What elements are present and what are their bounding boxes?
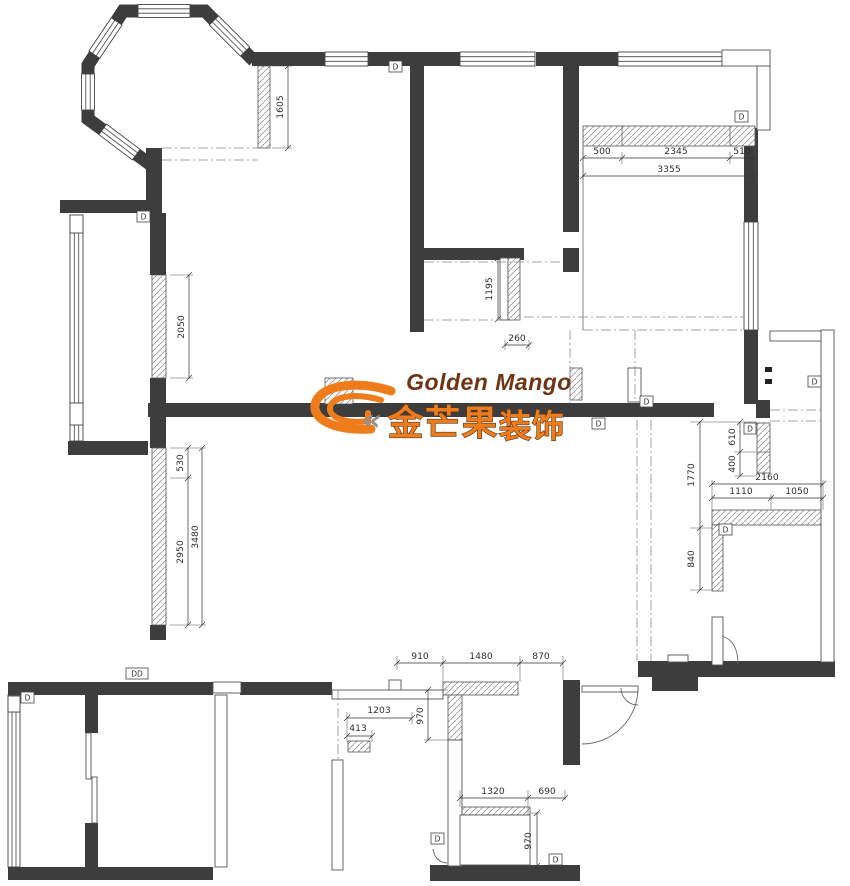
shower-box (460, 815, 530, 865)
door-label: D (137, 211, 150, 222)
sill (668, 655, 688, 662)
door-label: D (808, 376, 821, 387)
dim-1195: 1195 (484, 255, 501, 322)
dim-text: 2950 (175, 540, 186, 564)
floor-plan-svg: 1605 500 2345 510 3355 1195 260 2050 (0, 0, 850, 886)
hatched-wall (460, 807, 530, 815)
bottom-left-window (8, 695, 20, 867)
dim-910: 910 (394, 651, 446, 666)
wall-segment (536, 52, 618, 66)
svg-text:D: D (596, 420, 602, 429)
door-label: D (719, 524, 732, 535)
svg-text:D: D (644, 398, 650, 407)
hatched-wall (583, 126, 755, 146)
dim-text: 1195 (484, 277, 495, 301)
bay-window (82, 5, 255, 166)
door-label: D (640, 396, 653, 407)
hatched-wall (712, 510, 823, 525)
dim-text: 1770 (686, 463, 697, 487)
hatched-window (152, 275, 166, 378)
dim-text: 1203 (367, 705, 391, 716)
dim-text: 840 (686, 550, 697, 568)
top-window (325, 52, 368, 66)
svg-text:D: D (812, 378, 818, 387)
windows (8, 52, 758, 867)
wall-segment (410, 66, 424, 332)
sliding-door (86, 733, 91, 779)
dim-text: 690 (538, 786, 556, 797)
dim-text: 970 (415, 707, 426, 725)
dim-text: 910 (411, 651, 429, 662)
wall-segment (8, 682, 213, 695)
wall-segment (652, 677, 698, 691)
dim-610: 610 (727, 419, 743, 455)
bay-window-pane (209, 16, 249, 56)
dim-3480: 3480 (190, 445, 205, 628)
logo-type-zh: 装饰 (499, 407, 565, 445)
dim-840: 840 (686, 528, 703, 593)
right-window (744, 222, 758, 330)
dim-text: 610 (727, 428, 738, 446)
door-label: D (549, 854, 562, 865)
hatched-wall (348, 741, 370, 752)
sliding-door (92, 777, 97, 823)
wall-segment (563, 680, 580, 765)
dim-1605: 1605 (275, 63, 291, 151)
floor-plan-canvas: 1605 500 2345 510 3355 1195 260 2050 (0, 0, 850, 886)
dim-2160: 2160 (709, 472, 826, 487)
wall-segment (85, 692, 98, 733)
dim-text: 870 (532, 651, 550, 662)
lintel (213, 682, 241, 693)
bay-window-pane (82, 74, 95, 110)
svg-text:DD: DD (131, 670, 143, 679)
wall-segment (563, 66, 579, 232)
door-label-double: DD (126, 668, 148, 679)
logo-name-zh: 金芒果 (387, 403, 499, 444)
vent (765, 379, 772, 384)
wall-segment (85, 823, 98, 867)
thin-wall (332, 760, 343, 870)
vent (765, 367, 772, 372)
svg-text:D: D (435, 835, 441, 844)
dim-870: 870 (520, 651, 566, 666)
svg-text:D: D (393, 63, 399, 72)
dim-text: 1110 (729, 486, 753, 497)
wall-segment (8, 867, 213, 880)
wall-segment (240, 682, 332, 695)
door-label: D (21, 692, 34, 703)
svg-text:D: D (141, 213, 147, 222)
dimensions: 1605 500 2345 510 3355 1195 260 2050 (175, 63, 826, 869)
top-window (460, 52, 535, 66)
dim-2050: 2050 (176, 272, 192, 381)
dim-2345: 2345 (622, 146, 733, 161)
wall-segment (638, 661, 835, 677)
dim-text: 530 (175, 454, 186, 472)
door-label: D (389, 61, 402, 72)
wall-segment (368, 52, 460, 66)
entry-door-arc (582, 688, 638, 744)
hatched-wall (508, 258, 520, 320)
bay-window-pane (99, 124, 140, 160)
wall-segment (150, 213, 166, 275)
wall-segment (430, 865, 580, 881)
partition (628, 368, 641, 402)
door-label: D (592, 418, 605, 429)
dim-530: 530 (175, 445, 191, 481)
door-label: D (431, 833, 444, 844)
dim-500: 500 (580, 146, 625, 161)
balcony-door-arc (722, 636, 738, 664)
door-label: D (735, 111, 748, 122)
dim-400: 400 (727, 452, 743, 479)
left-balcony-window (70, 215, 83, 441)
hatched-wall (258, 66, 270, 148)
hatched-wall (448, 695, 462, 740)
dim-text: 413 (349, 723, 367, 734)
wall-segment (744, 330, 758, 404)
wall-segment (756, 400, 770, 418)
wall-segment (252, 52, 326, 66)
svg-text:D: D (25, 694, 31, 703)
dim-1480: 1480 (443, 651, 523, 666)
outline-walls (86, 50, 834, 870)
dim-text: 2160 (755, 472, 779, 483)
dim-1203: 1203 (344, 705, 415, 721)
small-door-arc (433, 849, 447, 863)
dim-260: 260 (502, 333, 532, 348)
partition (500, 258, 508, 320)
dim-text: 2050 (176, 315, 187, 339)
extension-lines (170, 66, 823, 866)
dim-text: 2345 (664, 146, 688, 157)
dim-2950: 2950 (175, 478, 191, 628)
svg-text:D: D (739, 113, 745, 122)
balcony-bottom-wall (68, 441, 148, 455)
door-label: D (744, 423, 756, 434)
corner-frame (757, 66, 770, 130)
dim-text: 260 (508, 333, 526, 344)
dim-text: 1320 (481, 786, 505, 797)
dim-1110: 1110 (709, 486, 774, 501)
dim-text: 1050 (785, 486, 809, 497)
svg-text:D: D (747, 425, 753, 434)
dim-413: 413 (344, 723, 375, 739)
wall-segment (150, 378, 166, 448)
top-window (618, 52, 722, 66)
svg-text:D: D (553, 856, 559, 865)
dim-1770: 1770 (686, 419, 703, 531)
dim-text: 400 (727, 455, 738, 473)
hatched-wall (757, 423, 770, 473)
dim-text: 1480 (469, 651, 493, 662)
hatched-window (152, 448, 166, 625)
dim-text: 970 (523, 832, 534, 850)
thin-wall (215, 695, 227, 867)
dim-text: 1605 (275, 95, 286, 119)
door-post (712, 617, 723, 665)
dim-690: 690 (528, 786, 568, 801)
dim-1050: 1050 (771, 486, 826, 501)
dim-text: 3355 (657, 164, 681, 175)
entry-door-leaf (582, 686, 638, 692)
dim-text: 3480 (190, 525, 201, 549)
bay-window-pane (138, 5, 190, 18)
dim-text: 510 (733, 146, 751, 157)
right-balcony-wall (770, 331, 821, 341)
wall-segment (563, 248, 579, 272)
wall-segment (150, 625, 166, 640)
svg-text:D: D (723, 526, 729, 535)
hatched-wall (443, 682, 518, 695)
dim-1320: 1320 (457, 786, 531, 801)
logo-chevron: « (362, 403, 382, 438)
dim-3355: 3355 (580, 164, 758, 179)
logo-name-en: Golden Mango (406, 369, 572, 395)
dim-text: 500 (593, 146, 611, 157)
bay-window-pane (89, 18, 122, 58)
corner-frame (722, 50, 770, 66)
